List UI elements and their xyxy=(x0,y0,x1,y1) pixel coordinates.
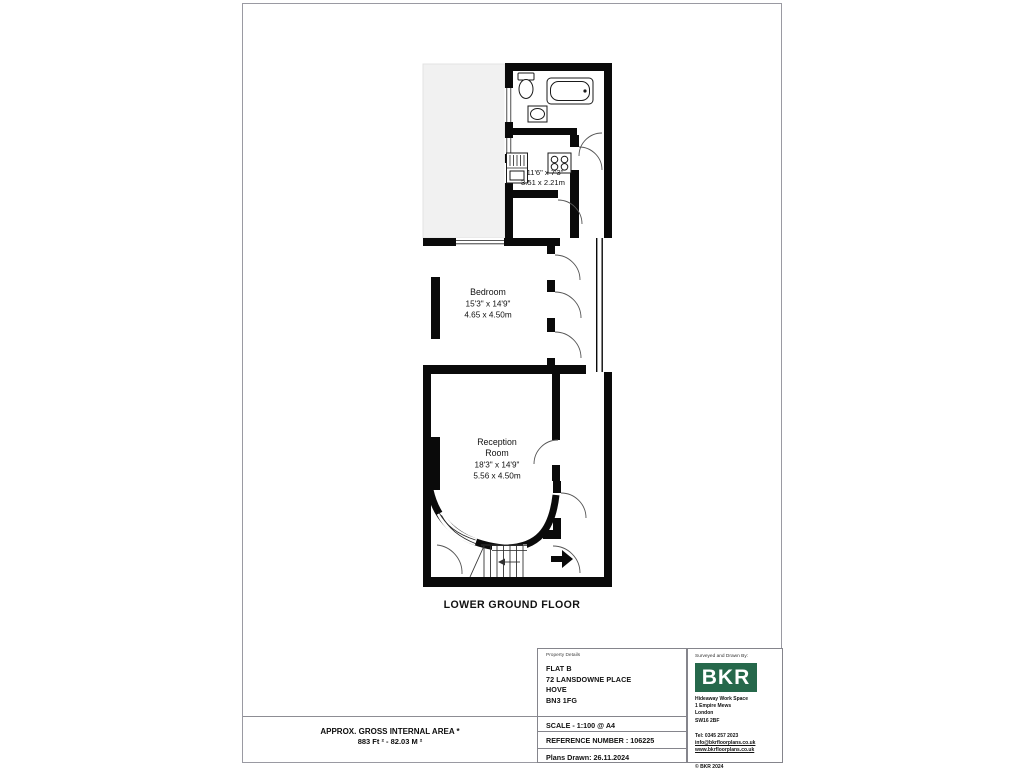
bedroom-dim-metric: 4.65 x 4.50m xyxy=(464,311,512,320)
bedroom-label: Bedroom xyxy=(470,287,506,297)
reception-dim-metric: 5.56 x 4.50m xyxy=(473,472,521,481)
reception-label-line2: Room xyxy=(485,448,508,458)
property-address-line4: BN3 1FG xyxy=(546,696,686,707)
surveyor-heading: Surveyed and Drawn By: xyxy=(695,654,782,659)
property-address-line3: HOVE xyxy=(546,685,686,696)
floor-plan-drawing: 11'6" x 7'3" 3.51 x 2.21m Bedroom 15'3" … xyxy=(0,0,1024,768)
floorplan-page-canvas: 11'6" x 7'3" 3.51 x 2.21m Bedroom 15'3" … xyxy=(0,0,1024,768)
surveyor-address-line2: 1 Empire Mews xyxy=(695,703,782,710)
area-note-line2: 883 Ft ² - 82.03 M ² xyxy=(243,737,537,747)
bkr-logo: BKR xyxy=(695,663,757,692)
reference-number-row: REFERENCE NUMBER : 106225 xyxy=(538,731,686,748)
floor-title: LOWER GROUND FLOOR xyxy=(444,599,581,611)
entrance-arrow-icon xyxy=(551,550,573,568)
surveyor-address-line4: SW16 2BF xyxy=(695,718,782,725)
surveyor-address-line1: Hideaway Work Space xyxy=(695,696,782,703)
property-details-box: Property Details FLAT B 72 LANSDOWNE PLA… xyxy=(537,648,687,763)
kitchen-dim-imperial: 11'6" x 7'3" xyxy=(527,168,564,177)
surveyor-address-line3: London xyxy=(695,710,782,717)
bathroom-fixtures xyxy=(518,73,593,122)
bay-window xyxy=(430,490,556,550)
property-details-heading: Property Details xyxy=(546,653,686,658)
terrace-area xyxy=(423,64,505,238)
property-address-line1: FLAT B xyxy=(546,664,686,675)
surveyor-box: Surveyed and Drawn By: BKR Hideaway Work… xyxy=(687,648,783,763)
toilet-icon xyxy=(519,80,533,99)
toilet-cistern-icon xyxy=(518,73,534,80)
reception-label-line1: Reception xyxy=(477,437,517,447)
surveyor-email: info@bkrfloorplans.co.uk xyxy=(695,740,782,747)
bedroom-dim-imperial: 15'3" x 14'9" xyxy=(466,300,511,309)
scale-row: SCALE - 1:100 @ A4 xyxy=(538,716,686,731)
kitchen-dim-metric: 3.51 x 2.21m xyxy=(521,178,565,187)
reception-dim-imperial: 18'3" x 14'9" xyxy=(475,461,520,470)
surveyor-telephone: Tel: 0345 257 2023 xyxy=(695,733,782,740)
area-note-line1: APPROX. GROSS INTERNAL AREA * xyxy=(243,727,537,737)
surveyor-copyright: © BKR 2024 xyxy=(695,764,782,768)
surveyor-website: www.bkrfloorplans.co.uk xyxy=(695,747,782,754)
area-section-divider xyxy=(243,716,537,717)
gross-internal-area-note: APPROX. GROSS INTERNAL AREA * 883 Ft ² -… xyxy=(243,727,537,747)
plans-drawn-row: Plans Drawn: 26.11.2024 xyxy=(538,748,686,763)
property-address-line2: 72 LANSDOWNE PLACE xyxy=(546,675,686,686)
stairs-direction-arrow-icon xyxy=(498,559,505,566)
